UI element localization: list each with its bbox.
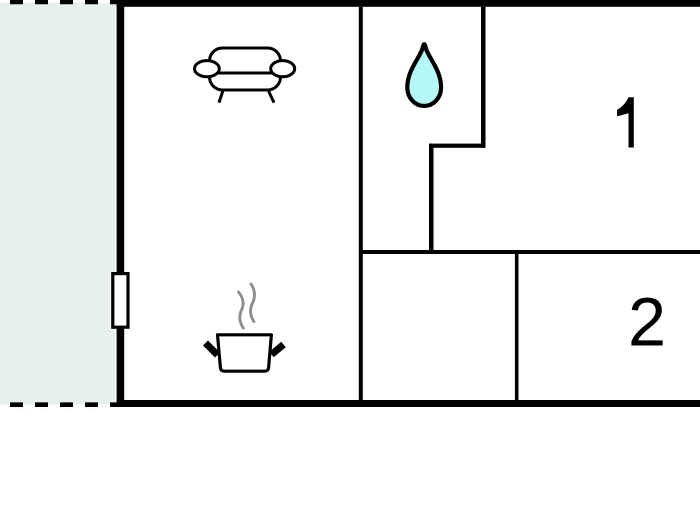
- svg-text:2: 2: [628, 284, 666, 361]
